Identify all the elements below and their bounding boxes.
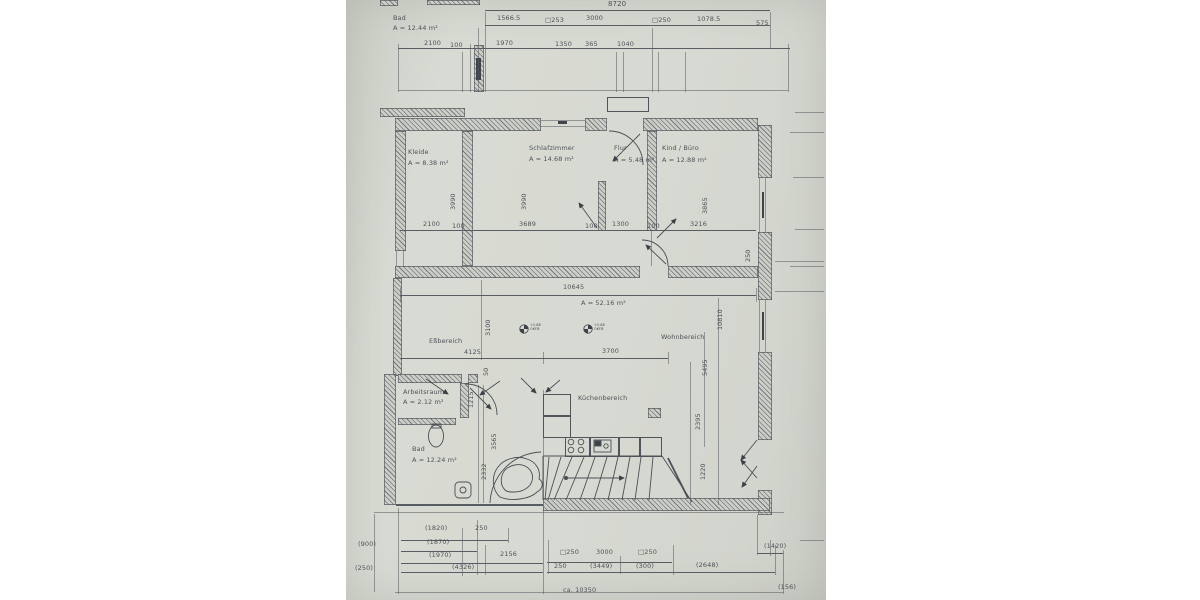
dim-label-v: 2332 xyxy=(481,463,488,480)
dim-label: 3700 xyxy=(602,348,619,355)
ext-line xyxy=(508,528,509,543)
dim-line xyxy=(401,572,543,573)
dim-line xyxy=(400,295,756,296)
ext-line xyxy=(685,52,686,92)
level-marker-text: OKFB xyxy=(530,328,539,332)
ext-line xyxy=(673,545,674,575)
ext-line xyxy=(788,44,789,92)
exterior-wall-left xyxy=(395,131,406,251)
construction-line xyxy=(398,90,788,91)
ext-line xyxy=(795,229,824,230)
dim-label: □250 xyxy=(560,549,579,556)
room-area-bad-upper: A = 12.44 m² xyxy=(393,25,438,32)
wall-stub xyxy=(468,374,478,383)
dim-label-v: 2395 xyxy=(695,413,702,430)
window-line xyxy=(759,300,760,352)
window-sash xyxy=(762,192,764,218)
dim-label: 575 xyxy=(756,20,769,27)
wall-segment xyxy=(380,108,465,117)
room-area-bad: A = 12.24 m² xyxy=(412,457,457,464)
dim-label: 2100 xyxy=(424,40,441,47)
dim-label-total: ca. 10350 xyxy=(563,587,596,594)
dim-tick xyxy=(668,352,669,364)
ext-line xyxy=(485,12,486,92)
interior-wall xyxy=(598,181,606,231)
dim-label: (2648) xyxy=(696,562,718,569)
dim-label: 3000 xyxy=(596,549,613,556)
interior-wall xyxy=(395,266,640,278)
dim-label: (1820) xyxy=(425,525,447,532)
exterior-wall-right xyxy=(758,232,772,300)
room-label-schlafzimmer: Schlafzimmer xyxy=(529,145,575,152)
dim-living-width: 10645 xyxy=(563,284,584,291)
dim-label: □250 xyxy=(638,549,657,556)
dim-line-v xyxy=(704,332,705,447)
exterior-wall-top xyxy=(643,118,758,131)
partition-line xyxy=(478,385,479,503)
room-area-flur: A = 5.48 m² xyxy=(614,157,655,164)
wall-segment xyxy=(427,0,480,5)
kitchen-cabinet xyxy=(618,437,641,457)
wall-line xyxy=(396,504,543,506)
dim-tick xyxy=(756,288,757,302)
room-label-wohnbereich: Wohnbereich xyxy=(661,334,705,341)
window-line xyxy=(403,251,404,267)
dim-label: 1040 xyxy=(617,41,634,48)
dim-label-v: 5495 xyxy=(702,359,709,376)
dim-label: 1566.5 xyxy=(497,15,520,22)
room-label-flur: Flur xyxy=(614,145,627,152)
room-label-bad-upper: Bad xyxy=(393,15,406,22)
ext-line xyxy=(800,540,824,541)
room-label-essbereich: Eßbereich xyxy=(429,338,462,345)
dim-label: 2156 xyxy=(500,551,517,558)
construction-line xyxy=(374,512,784,513)
dim-label-v: 3100 xyxy=(485,319,492,336)
dim-label: 1300 xyxy=(612,221,629,228)
ext-line xyxy=(374,514,375,592)
ext-line xyxy=(790,266,824,267)
partition-line xyxy=(651,231,652,266)
ext-line xyxy=(652,28,653,92)
ext-line xyxy=(770,12,771,48)
exterior-wall-right xyxy=(758,125,772,178)
dim-label: 3689 xyxy=(519,221,536,228)
ext-line xyxy=(775,291,824,292)
ext-line xyxy=(795,112,824,113)
room-area-kleide: A = 8.38 m² xyxy=(408,160,449,167)
dim-label: (4326) xyxy=(452,564,474,571)
dim-label: (1420) xyxy=(764,543,786,550)
room-label-kind-buero: Kind / Büro xyxy=(662,145,699,152)
ext-line xyxy=(485,545,486,575)
kitchen-sink xyxy=(589,437,620,457)
kitchen-cabinet xyxy=(543,394,571,417)
dim-label: 3216 xyxy=(690,221,707,228)
dim-total-top: 8720 xyxy=(608,1,626,8)
dim-label: 100 xyxy=(647,223,660,230)
room-area-schlafzimmer: A = 14.68 m² xyxy=(529,156,574,163)
dim-label-v: 250 xyxy=(745,250,752,262)
dim-tick xyxy=(400,288,401,302)
ext-line xyxy=(623,52,624,92)
dim-label: □253 xyxy=(545,17,564,24)
ext-line xyxy=(793,177,824,178)
window-line xyxy=(396,251,397,267)
dim-label: 4125 xyxy=(464,349,481,356)
dim-line-v xyxy=(690,362,691,505)
dim-label: 100 xyxy=(452,223,465,230)
dim-label: (900) xyxy=(358,541,376,548)
dim-label-v: 1215 xyxy=(468,391,475,408)
ext-line xyxy=(462,52,463,92)
kitchen-hob xyxy=(565,437,591,457)
window-line xyxy=(765,300,766,352)
window-sash xyxy=(558,121,567,124)
dim-label-v: 3865 xyxy=(702,197,709,214)
dim-label: (250) xyxy=(355,565,373,572)
dim-label: 365 xyxy=(585,41,598,48)
room-label-kuechenbereich: Küchenbereich xyxy=(578,395,627,402)
dim-label: 2100 xyxy=(423,221,440,228)
dim-label-v: 10810 xyxy=(717,309,724,330)
dim-label-v: 3990 xyxy=(521,193,528,210)
dim-label: 1350 xyxy=(555,41,572,48)
ext-line xyxy=(470,44,471,92)
ext-line xyxy=(658,52,659,92)
window-line xyxy=(765,178,766,232)
dim-label: (1970) xyxy=(429,552,451,559)
dim-label: 3000 xyxy=(586,15,603,22)
dim-tick xyxy=(543,352,544,364)
dim-label-v: 3565 xyxy=(491,433,498,450)
dim-label: 1970 xyxy=(496,40,513,47)
dim-label: (3449) xyxy=(590,563,612,570)
partition-line xyxy=(483,385,484,503)
interior-wall xyxy=(647,131,657,231)
dim-line xyxy=(400,358,668,359)
ext-line xyxy=(398,44,399,92)
interior-wall xyxy=(462,131,473,266)
exterior-wall-top xyxy=(395,118,541,131)
exterior-wall-right xyxy=(758,352,772,440)
dim-label: □250 xyxy=(652,17,671,24)
room-area-living: A = 52.16 m² xyxy=(581,300,626,307)
interior-wall xyxy=(398,418,456,425)
dim-label: 100 xyxy=(450,42,463,49)
dim-line xyxy=(485,25,770,26)
dim-label: (300) xyxy=(636,563,654,570)
dim-label: 1078.5 xyxy=(697,16,720,23)
exterior-wall-bottom xyxy=(543,498,770,511)
ext-line xyxy=(620,556,621,574)
exterior-wall-left xyxy=(384,374,396,505)
room-label-kleide: Kleide xyxy=(408,149,429,156)
room-label-bad: Bad xyxy=(412,446,425,453)
level-marker-text: OKFB xyxy=(594,328,603,332)
exterior-wall-top xyxy=(585,118,607,131)
wall-segment xyxy=(380,0,398,6)
dim-label: 250 xyxy=(475,525,488,532)
window-sash xyxy=(762,312,764,340)
chimney xyxy=(607,97,649,112)
ext-line xyxy=(790,132,824,133)
dim-label: (156) xyxy=(778,584,796,591)
dim-label: 100 xyxy=(585,223,598,230)
dim-label-v: 3990 xyxy=(450,193,457,210)
room-area-arbeitsraum: A = 2.12 m² xyxy=(403,399,444,406)
dim-line xyxy=(673,572,775,573)
ext-line xyxy=(775,261,824,262)
room-label-arbeitsraum: Arbeitsraum xyxy=(403,389,444,396)
kitchen-cabinet xyxy=(639,437,662,457)
ext-line xyxy=(543,508,544,594)
ext-line xyxy=(548,540,549,574)
window-line xyxy=(541,126,585,127)
dim-line-v xyxy=(481,280,482,360)
ext-line xyxy=(478,28,479,92)
dim-line xyxy=(547,572,673,573)
column xyxy=(648,408,661,418)
room-area-kind-buero: A = 12.88 m² xyxy=(662,157,707,164)
dim-line xyxy=(401,540,508,541)
dim-line xyxy=(400,230,756,231)
dim-line xyxy=(485,10,770,11)
dim-label: 250 xyxy=(554,563,567,570)
window-line xyxy=(759,178,760,232)
dim-label-v: 50 xyxy=(483,368,490,376)
interior-wall xyxy=(668,266,758,278)
kitchen-cabinet xyxy=(543,415,571,438)
ext-line xyxy=(757,515,758,555)
ext-line xyxy=(616,52,617,92)
dim-label-v: 1220 xyxy=(700,463,707,480)
screenshot-root: Bad A = 12.44 m² 8720 1566.5 □253 3000 □… xyxy=(0,0,1200,600)
ext-line xyxy=(398,508,399,594)
interior-wall xyxy=(398,374,462,383)
dim-label: (1870) xyxy=(427,539,449,546)
